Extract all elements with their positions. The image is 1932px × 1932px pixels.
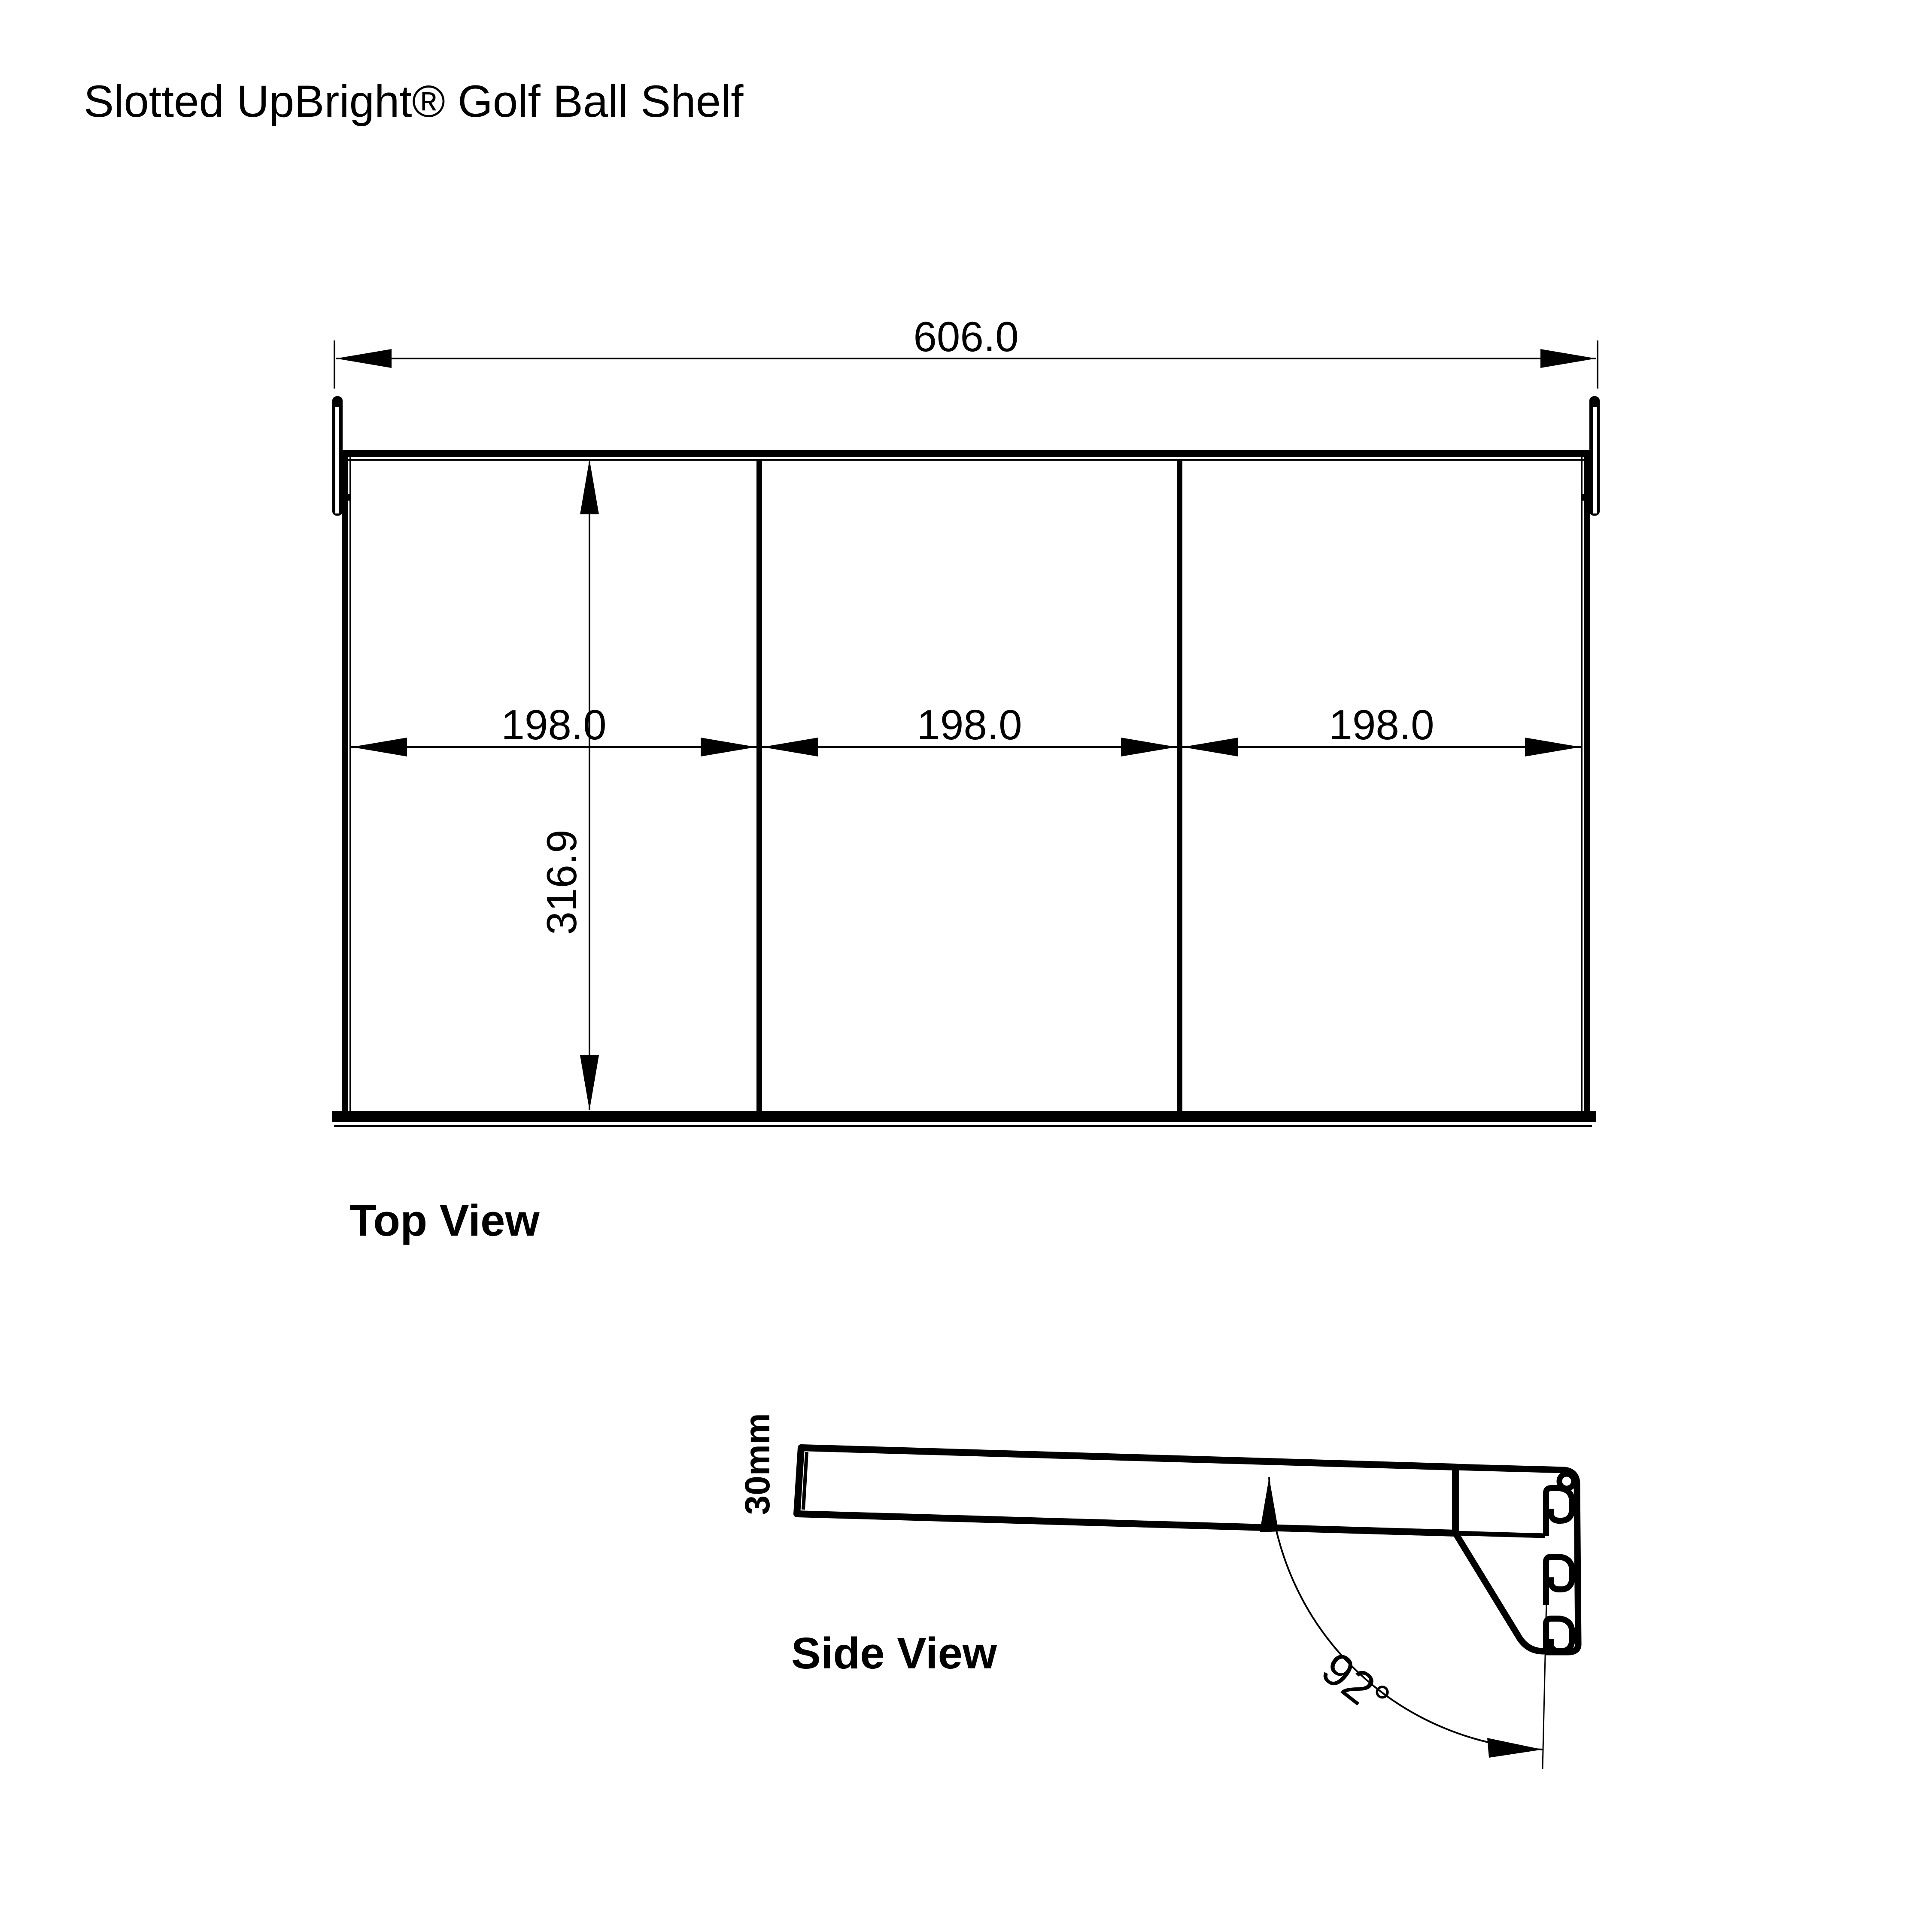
dim-text-overall-width: 606.0 bbox=[913, 313, 1018, 360]
shelf-right-wall bbox=[1584, 457, 1590, 1111]
dim-text-depth: 316.9 bbox=[538, 829, 585, 935]
side-view-label: Side View bbox=[791, 1628, 997, 1678]
shelf-bottom-edge-inner-line bbox=[334, 1125, 1592, 1127]
divider-1 bbox=[756, 459, 762, 1111]
dimension-line bbox=[589, 462, 590, 1110]
bracket-lip-line bbox=[1455, 1533, 1545, 1536]
extension-line-left bbox=[334, 340, 335, 389]
shelf-left-wall bbox=[342, 457, 348, 1111]
shelf-left-wall-inner-line bbox=[349, 457, 351, 1111]
shelf-right-wall-inner-line bbox=[1581, 457, 1583, 1111]
extension-line-right bbox=[1597, 340, 1598, 389]
left-tab-slot bbox=[335, 407, 339, 513]
dim-text-section-3: 198.0 bbox=[1329, 701, 1434, 748]
dim-text-section-2: 198.0 bbox=[917, 701, 1022, 748]
divider-2 bbox=[1177, 459, 1182, 1111]
shelf-top-edge bbox=[342, 450, 1590, 457]
top-view-label: Top View bbox=[349, 1196, 540, 1245]
dim-text-thickness: 30mm bbox=[738, 1413, 777, 1515]
drawing-title: Slotted UpBright® Golf Ball Shelf bbox=[84, 76, 744, 127]
drawing-sheet: Slotted UpBright® Golf Ball Shelf bbox=[0, 0, 1932, 1932]
right-tab-slot bbox=[1593, 407, 1597, 513]
shelf-top-edge-inner-line bbox=[348, 459, 1584, 461]
dim-text-section-1: 198.0 bbox=[501, 701, 606, 748]
dimension-section-widths: 198.0 198.0 198.0 bbox=[351, 701, 1581, 756]
shelf-bottom-edge bbox=[332, 1111, 1596, 1122]
